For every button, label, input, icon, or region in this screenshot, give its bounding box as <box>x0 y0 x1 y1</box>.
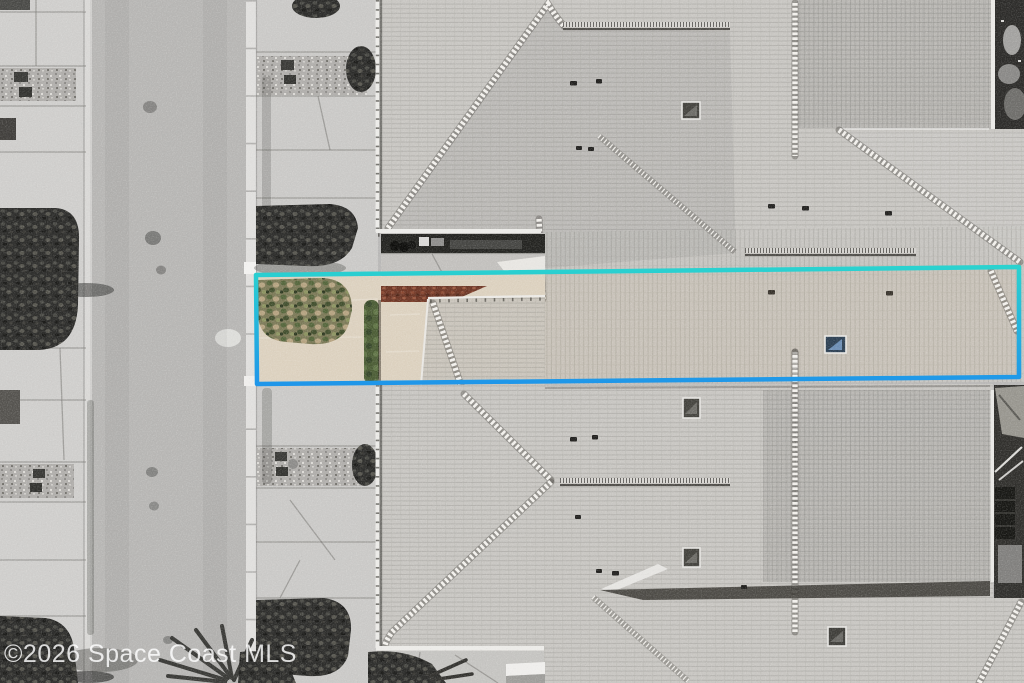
film-grain-dark <box>0 0 1024 683</box>
aerial-listing-photo: ©2026 Space Coast MLS <box>0 0 1024 683</box>
aerial-photo-canvas: ©2026 Space Coast MLS <box>0 0 1024 683</box>
watermark-text: ©2026 Space Coast MLS <box>4 640 297 668</box>
